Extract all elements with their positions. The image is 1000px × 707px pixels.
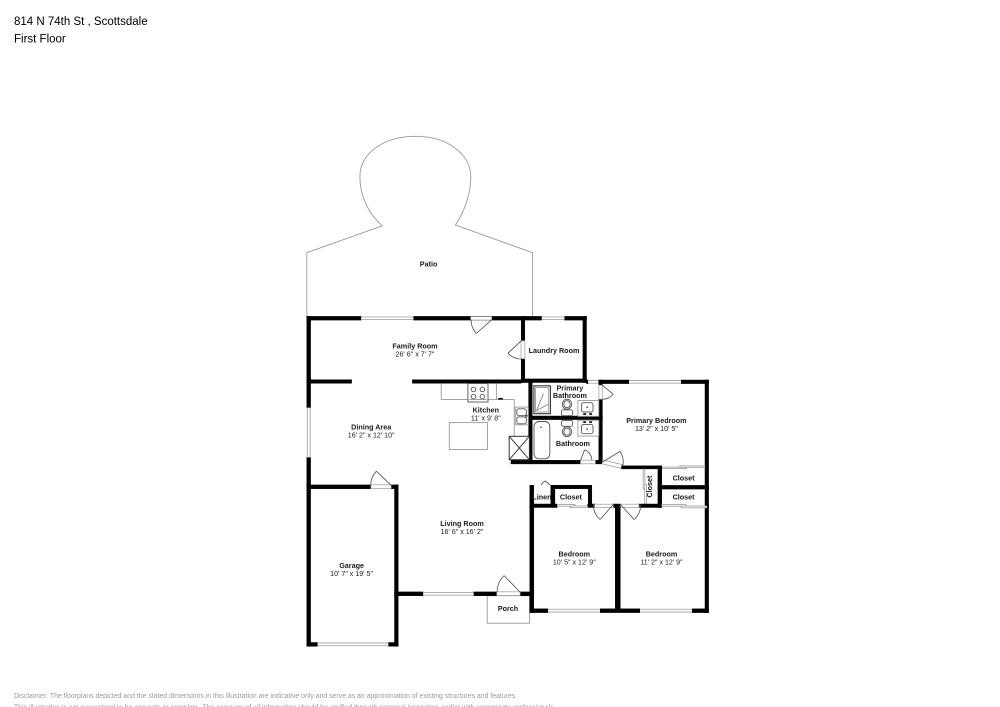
svg-text:11' x 9' 8": 11' x 9' 8" (471, 414, 501, 422)
svg-text:Family Room: Family Room (392, 341, 437, 350)
svg-text:Garage: Garage (339, 561, 364, 570)
svg-text:First Floor: First Floor (14, 34, 66, 46)
svg-text:Primary Bedroom: Primary Bedroom (626, 416, 686, 425)
svg-text:10' 7" x 19' 5": 10' 7" x 19' 5" (330, 570, 373, 578)
svg-text:10' 5" x 12' 9": 10' 5" x 12' 9" (553, 558, 596, 566)
svg-text:16' 2" x 12' 10": 16' 2" x 12' 10" (348, 431, 395, 439)
svg-text:Linen: Linen (532, 492, 551, 501)
svg-text:Dining Area: Dining Area (351, 422, 392, 431)
svg-text:Patio: Patio (420, 260, 438, 269)
svg-text:Bedroom: Bedroom (646, 550, 678, 559)
svg-text:Disclaimer: The floorplans dep: Disclaimer: The floorplans depicted and … (14, 693, 517, 700)
svg-text:Porch: Porch (498, 604, 518, 613)
svg-text:Bathroom: Bathroom (556, 439, 590, 448)
svg-text:Closet: Closet (560, 492, 583, 501)
svg-text:Bathroom: Bathroom (553, 391, 587, 400)
svg-text:Kitchen: Kitchen (473, 405, 499, 414)
svg-text:Closet: Closet (673, 473, 696, 482)
svg-text:814 N 74th St , Scottsdale: 814 N 74th St , Scottsdale (14, 16, 148, 28)
svg-text:Closet: Closet (673, 492, 696, 501)
svg-text:16' 6" x 16' 2": 16' 6" x 16' 2" (441, 528, 484, 536)
svg-text:26' 6" x 7' 7": 26' 6" x 7' 7" (396, 350, 435, 358)
svg-text:11' 2" x 12' 9": 11' 2" x 12' 9" (640, 558, 683, 566)
svg-text:Bedroom: Bedroom (559, 550, 591, 559)
svg-text:Living Room: Living Room (440, 519, 484, 528)
svg-text:Laundry Room: Laundry Room (529, 346, 580, 355)
svg-text:13' 2" x 10' 5": 13' 2" x 10' 5" (635, 425, 678, 433)
svg-text:Closet: Closet (645, 475, 654, 498)
